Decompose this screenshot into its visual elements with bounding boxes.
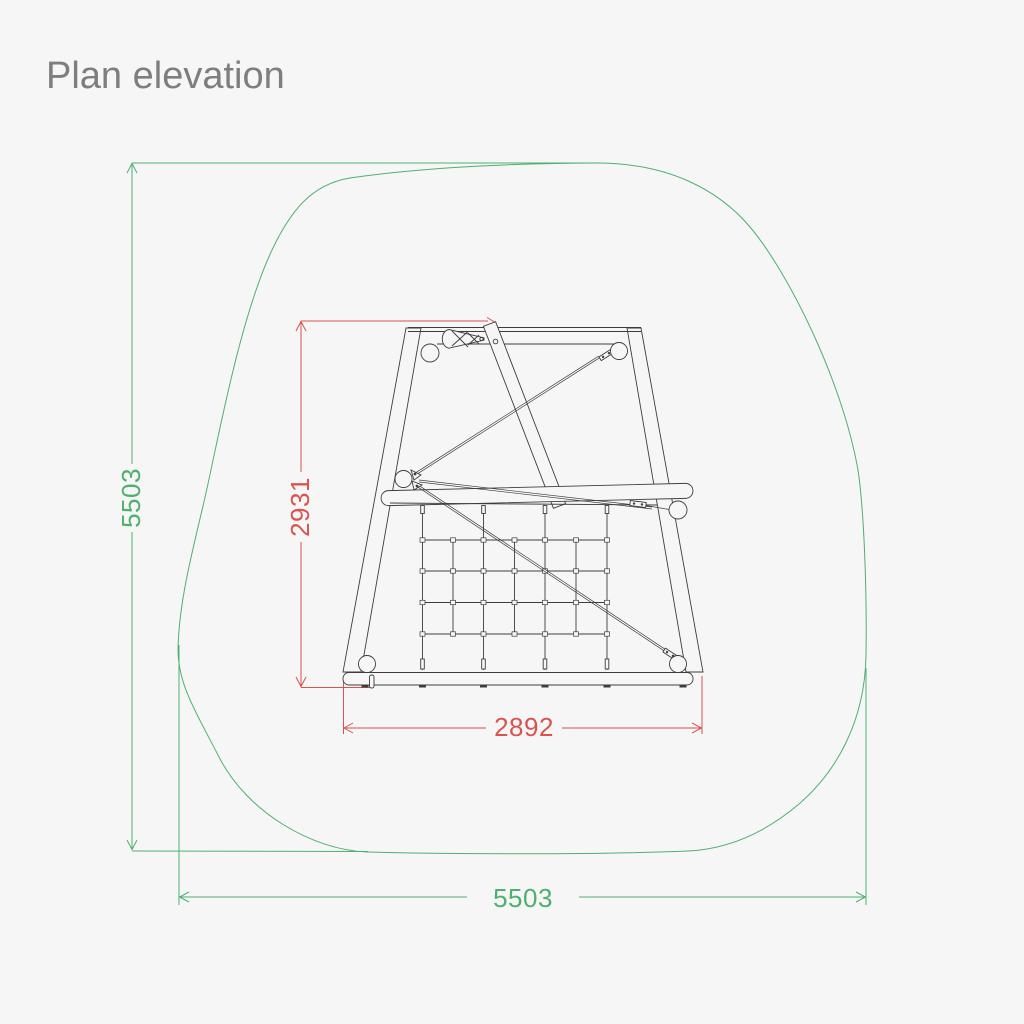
corner-ball-mid-left [395,471,412,488]
corner-ball-bottom-left [359,656,376,673]
corner-ball-bottom-right [670,656,687,673]
dim-safety-zone-width-label: 5503 [493,883,553,913]
dim-structure-width-label: 2892 [494,712,554,742]
anchor-pin [370,675,375,688]
corner-ball-mid-right [669,501,687,519]
corner-ball-top-right [611,343,628,360]
extension-line [132,851,368,852]
plan-elevation-drawing: Plan elevation 5503 5503 2931 [0,0,1024,1024]
page-title: Plan elevation [46,55,285,97]
dim-structure-height-label: 2931 [285,477,315,537]
corner-ball-top-left [421,344,439,362]
dim-safety-zone-height-label: 5503 [116,468,146,528]
drawing-background [0,0,1024,1024]
